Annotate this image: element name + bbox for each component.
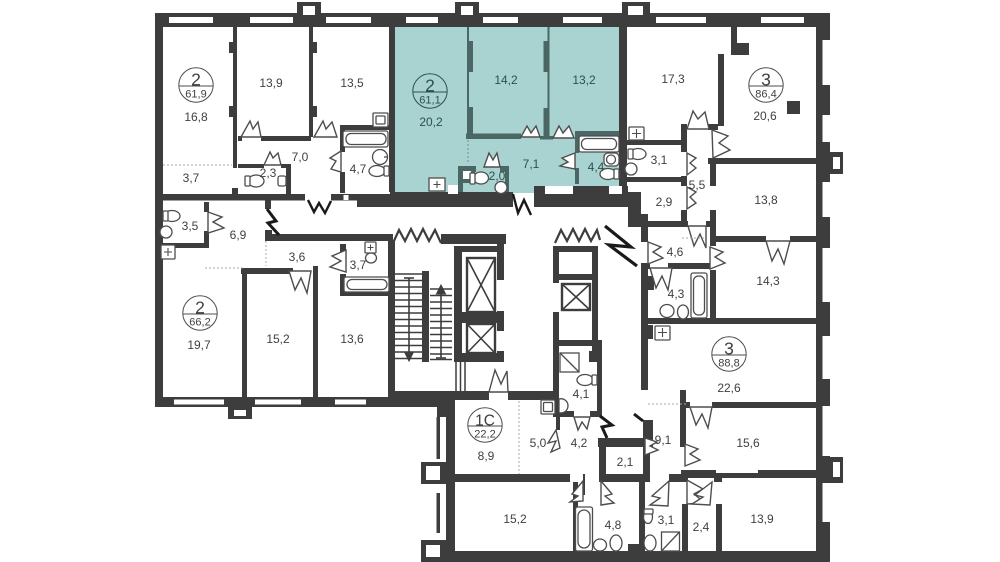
svg-text:2,9: 2,9 [656,195,673,209]
svg-text:3,1: 3,1 [658,513,675,527]
svg-text:66,2: 66,2 [189,317,210,329]
svg-text:17,3: 17,3 [661,72,685,86]
svg-text:14,3: 14,3 [756,274,780,288]
svg-text:15,6: 15,6 [736,436,760,450]
svg-text:9,1: 9,1 [655,433,672,447]
svg-text:14,2: 14,2 [494,73,518,87]
svg-text:13,9: 13,9 [259,76,283,90]
svg-text:13,9: 13,9 [750,512,774,526]
svg-text:2: 2 [195,298,205,318]
svg-text:3,1: 3,1 [651,153,668,167]
svg-text:2,0: 2,0 [489,169,506,183]
svg-text:5,5: 5,5 [689,178,706,192]
svg-text:4,1: 4,1 [573,387,590,401]
svg-text:3: 3 [724,339,734,359]
svg-text:3,7: 3,7 [183,171,200,185]
svg-text:22,2: 22,2 [474,429,495,441]
svg-text:2,4: 2,4 [693,520,710,534]
svg-text:1C: 1C [475,413,495,430]
svg-text:20,6: 20,6 [753,109,777,123]
svg-text:8,9: 8,9 [478,449,495,463]
svg-text:3,7: 3,7 [350,258,367,272]
svg-text:3: 3 [761,70,771,90]
svg-text:4,4: 4,4 [588,160,605,174]
svg-text:6,9: 6,9 [230,228,247,242]
svg-text:3,6: 3,6 [289,250,306,264]
svg-text:2,3: 2,3 [260,166,277,180]
svg-text:4,7: 4,7 [350,162,367,176]
svg-text:4,2: 4,2 [571,436,588,450]
svg-text:15,2: 15,2 [266,332,290,346]
svg-text:13,5: 13,5 [340,76,364,90]
svg-text:19,7: 19,7 [187,338,211,352]
svg-text:5,0: 5,0 [530,436,547,450]
svg-text:2: 2 [425,76,435,96]
svg-text:86,4: 86,4 [755,89,776,101]
svg-text:16,8: 16,8 [184,110,208,124]
svg-text:7,0: 7,0 [292,150,309,164]
svg-text:22,6: 22,6 [717,381,741,395]
svg-text:61,9: 61,9 [185,89,206,101]
svg-text:13,8: 13,8 [754,193,778,207]
svg-text:3,5: 3,5 [182,219,199,233]
svg-text:13,2: 13,2 [572,73,596,87]
svg-text:88,8: 88,8 [718,358,739,370]
svg-text:7,1: 7,1 [523,157,540,171]
svg-text:2: 2 [191,70,201,90]
svg-text:4,6: 4,6 [667,245,684,259]
svg-text:61,1: 61,1 [419,95,440,107]
svg-text:13,6: 13,6 [340,332,364,346]
svg-text:4,3: 4,3 [668,287,685,301]
svg-text:4,8: 4,8 [605,518,622,532]
svg-text:15,2: 15,2 [503,512,527,526]
svg-text:2,1: 2,1 [617,455,634,469]
svg-text:20,2: 20,2 [419,115,443,129]
